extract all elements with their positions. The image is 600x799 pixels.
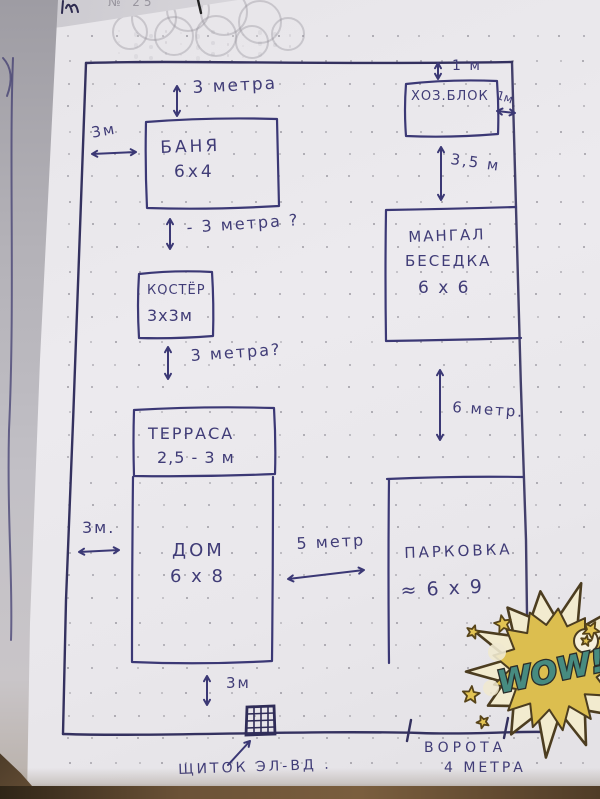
star-icon [467, 625, 480, 638]
star-icon [477, 716, 489, 728]
notebook-photo: № 25 3 метра 3м БАНЯ 6х4 1 м ХОЗ.БЛОК 1м… [0, 0, 600, 799]
star-icon [463, 686, 480, 703]
table-wood-edge [0, 786, 600, 799]
star-icon [494, 615, 511, 632]
wow-sticker: WOW! [0, 0, 600, 799]
sticker-blob [488, 643, 506, 661]
